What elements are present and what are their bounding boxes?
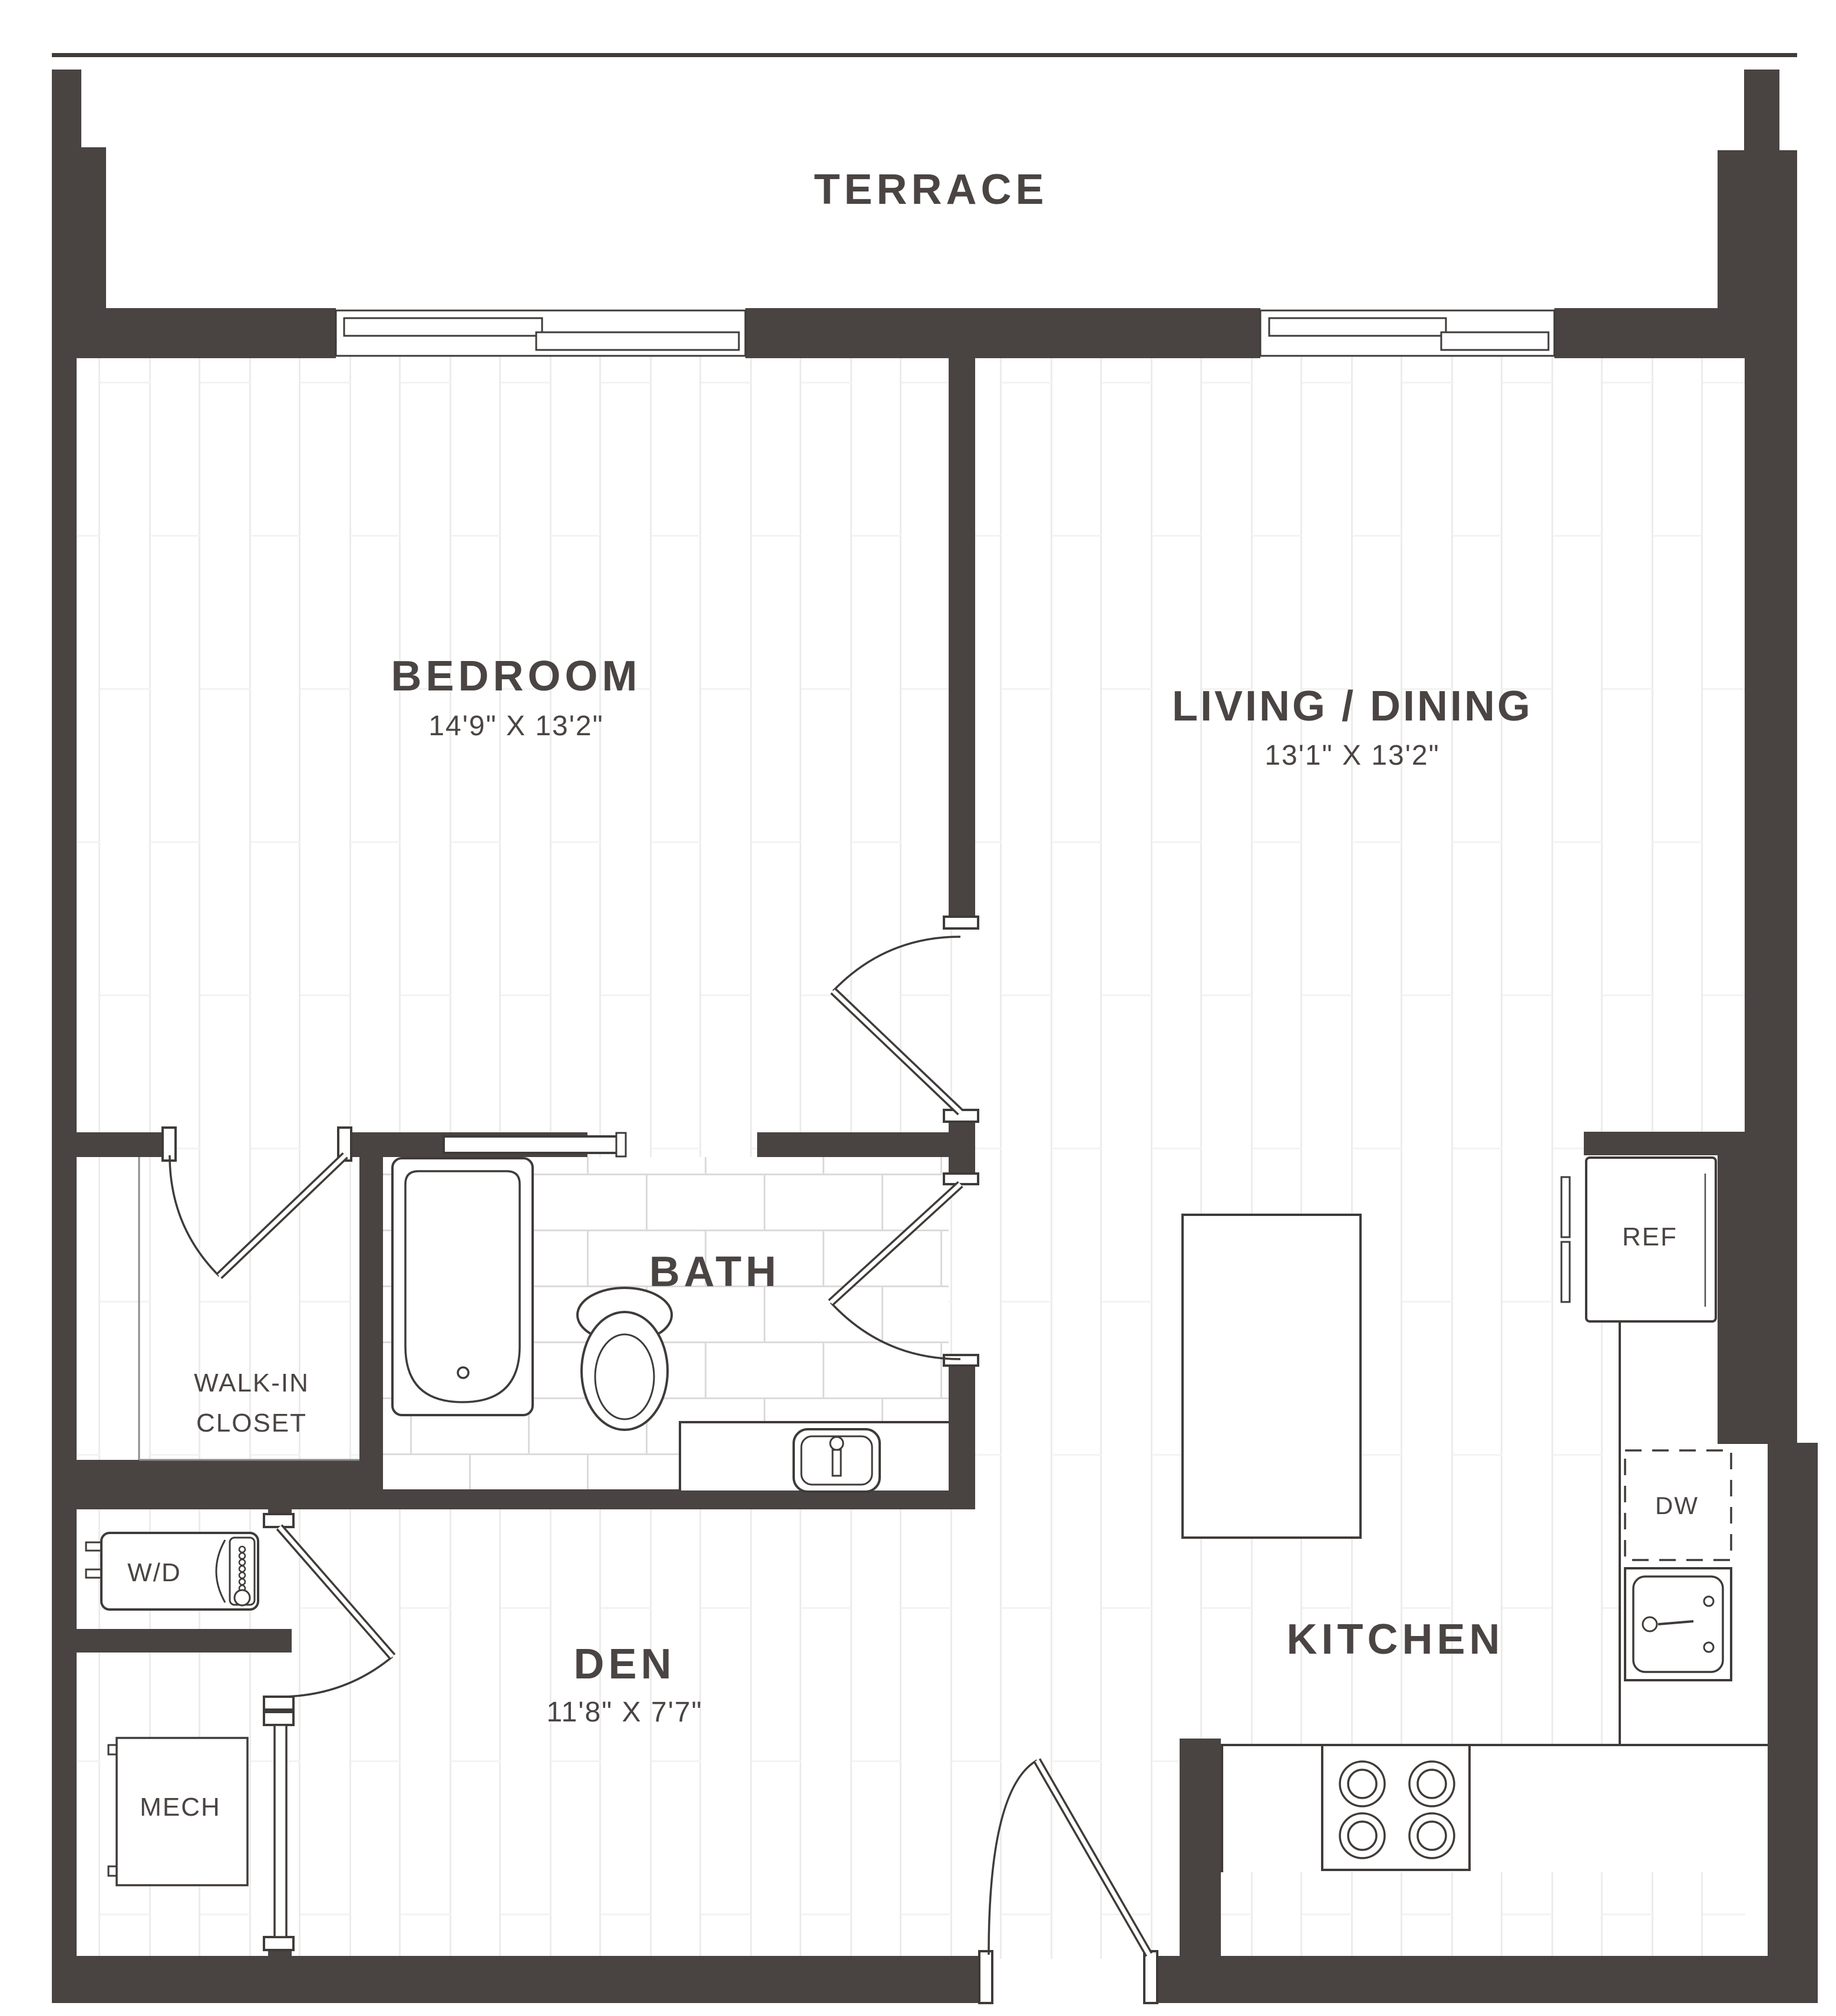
dw-label: DW: [1655, 1492, 1699, 1519]
living-window-pane-left: [1269, 318, 1446, 336]
living-dining-dims: 13'1" X 13'2": [1264, 740, 1439, 771]
floor-plan-canvas: TERRACE BEDROOM 14'9" X 13'2" LIVING / D…: [0, 0, 1836, 2016]
bedroom-window-pane-right: [536, 332, 739, 350]
bedroom-door-jamb-top: [944, 917, 978, 928]
bedroom-door-jamb-bottom: [944, 1110, 978, 1122]
bottom-wall-right: [1154, 1956, 1818, 2003]
closet-label-line1: WALK-IN: [194, 1369, 309, 1397]
toilet: [577, 1288, 672, 1430]
wd-mech-partition-wall: [77, 1629, 292, 1653]
mech-foot-top: [108, 1745, 117, 1754]
terrace-right-wall-upper: [1744, 70, 1779, 152]
bath-top-wall-right: [757, 1132, 949, 1157]
bath-bottom-wall: [383, 1489, 975, 1509]
mech-label: MECH: [140, 1793, 221, 1822]
sliding-door-panel: [444, 1136, 625, 1153]
wd-knob: [235, 1590, 250, 1605]
vanity-faucet: [830, 1437, 843, 1450]
terrace-label: TERRACE: [814, 166, 1048, 213]
bottom-wall-left: [52, 1956, 984, 2003]
left-wall: [52, 358, 77, 1957]
toilet-bowl-inner: [595, 1334, 654, 1419]
entry-door-jamb-left: [979, 1951, 992, 2003]
vanity-faucet-stem: [833, 1450, 841, 1476]
bedroom-label: BEDROOM: [391, 653, 642, 700]
terrace-left-wall-upper: [52, 70, 81, 150]
closet-tub-divider-wall: [359, 1157, 383, 1460]
sliding-door-endcap: [616, 1133, 626, 1156]
wd-door-jamb-top: [264, 1514, 293, 1527]
ref-label: REF: [1622, 1222, 1678, 1251]
entry-door-jamb-right: [1144, 1951, 1157, 2003]
bedroom-living-divider-wall: [949, 358, 975, 917]
floor-plan: TERRACE BEDROOM 14'9" X 13'2" LIVING / D…: [0, 0, 1836, 2016]
bath-vanity: [679, 1421, 949, 1492]
wd-label: W/D: [127, 1558, 181, 1587]
ref-handle-bottom: [1561, 1242, 1570, 1302]
bathtub: [392, 1158, 533, 1415]
bath-right-wall: [949, 1366, 975, 1509]
bath-sliding-door: [444, 1133, 626, 1156]
kitchen-sink-knob-top: [1704, 1597, 1713, 1606]
wd-door-jamb-bottom: [264, 1697, 293, 1710]
bathtub-drain: [458, 1367, 468, 1378]
den-label: DEN: [573, 1641, 675, 1688]
living-window-pane-right: [1441, 332, 1548, 350]
wd-foot-top: [86, 1542, 101, 1551]
bath-door-jamb-bottom: [944, 1355, 978, 1366]
kitchen-island: [1183, 1215, 1361, 1538]
mech-door-panel: [275, 1725, 286, 1937]
bath-door-jamb-top: [944, 1174, 978, 1184]
kitchen-sink-knob-bottom: [1704, 1642, 1713, 1652]
den-dims: 11'8" X 7'7": [546, 1697, 702, 1728]
floors: [77, 356, 1768, 1959]
closet-label-line2: CLOSET: [196, 1409, 307, 1437]
bedroom-window-pane-left: [344, 318, 542, 336]
kitchen-corner-wall: [1180, 1739, 1221, 1956]
terrace-edge-line: [52, 53, 1797, 57]
kitchen-faucet: [1643, 1617, 1657, 1631]
bedroom-dims: 14'9" X 13'2": [428, 710, 603, 742]
closet-bottom-wall: [77, 1460, 383, 1509]
ref-handle-top: [1561, 1177, 1570, 1237]
divider-stub-wall: [949, 1122, 975, 1174]
mech-door-jamb-top: [264, 1712, 293, 1725]
right-wall-upper: [1745, 308, 1797, 1133]
mech-door-jamb-bottom: [264, 1937, 293, 1950]
top-wall-middle: [745, 308, 1260, 358]
right-wall-lower: [1768, 1443, 1818, 2003]
bath-label: BATH: [649, 1248, 781, 1295]
right-wall-mid: [1718, 1132, 1797, 1444]
wd-foot-bottom: [86, 1569, 101, 1578]
stove: [1322, 1745, 1470, 1870]
terrace-left-wall-lower: [52, 147, 106, 310]
kitchen-sink: [1625, 1568, 1731, 1680]
terrace-right-wall-lower: [1718, 150, 1797, 309]
kitchen-label: KITCHEN: [1287, 1616, 1504, 1663]
living-dining-label: LIVING / DINING: [1172, 683, 1533, 730]
closet-top-wall: [77, 1132, 164, 1157]
top-wall-left: [52, 308, 336, 358]
mech-foot-bottom: [108, 1866, 117, 1876]
